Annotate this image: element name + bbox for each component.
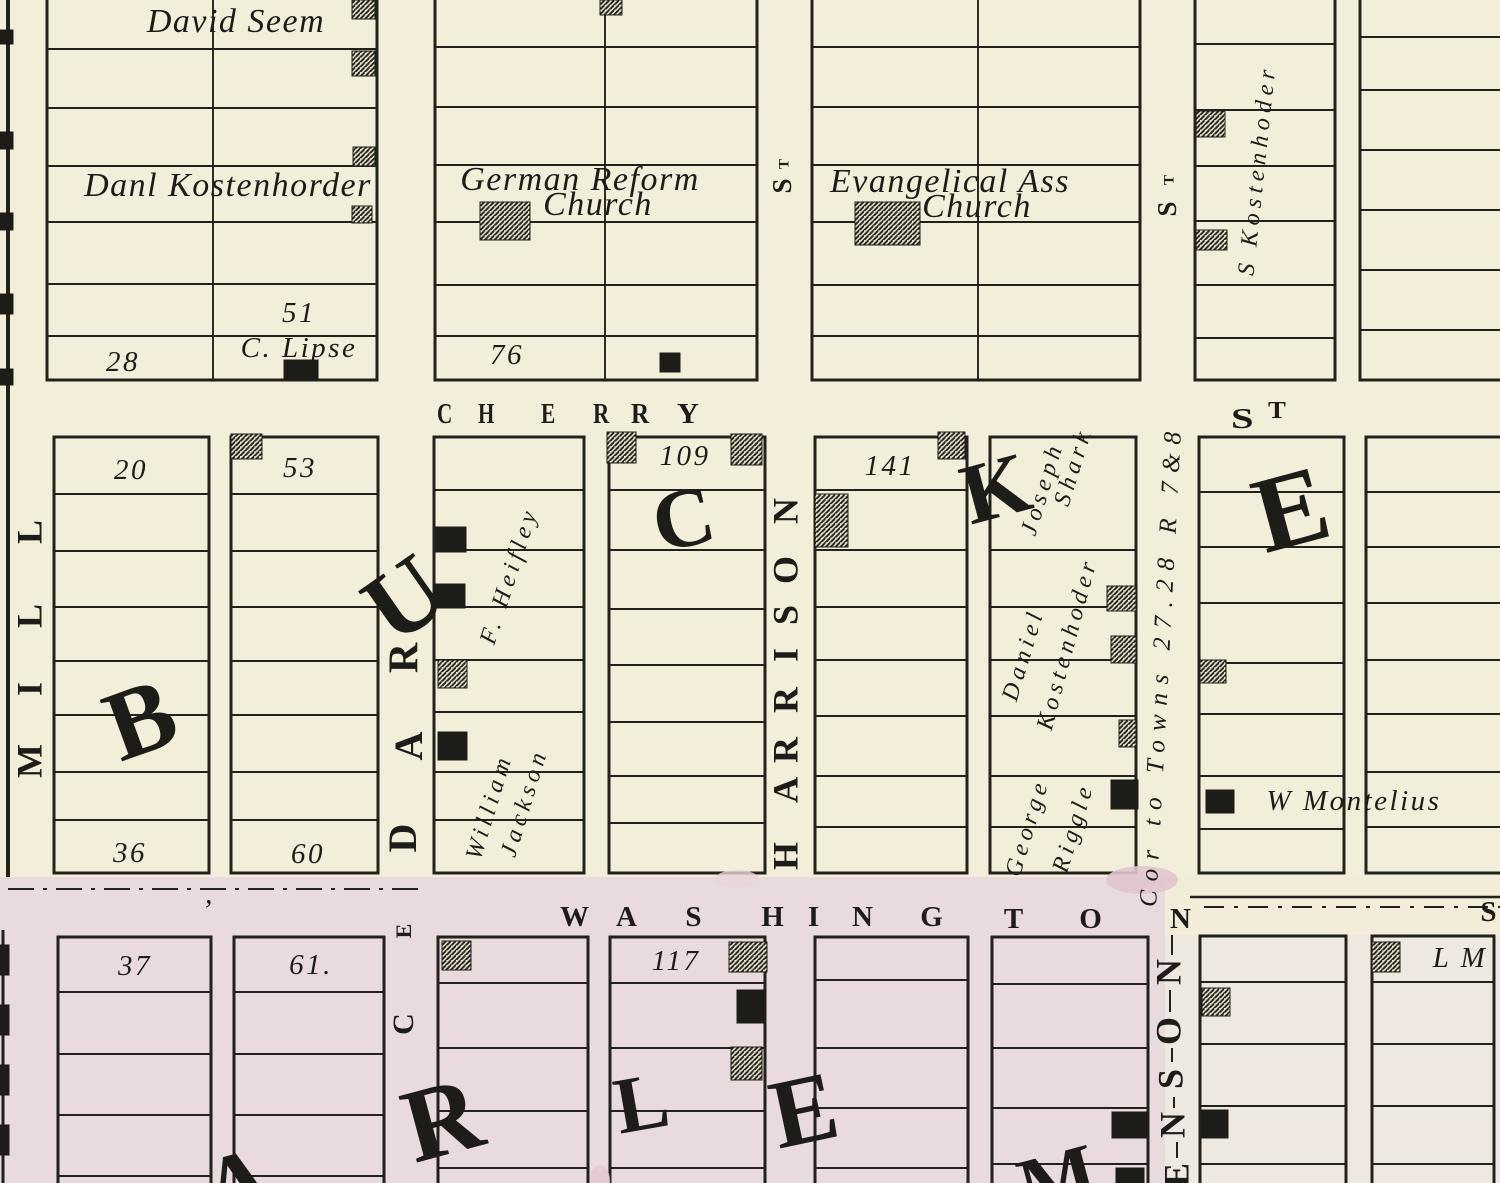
svg-text:60: 60 <box>291 838 325 870</box>
svg-text:I: I <box>765 648 805 662</box>
svg-text:A: A <box>616 901 638 933</box>
svg-text:Church: Church <box>922 188 1032 225</box>
svg-text:G: G <box>920 901 944 933</box>
svg-text:53: 53 <box>283 452 317 484</box>
svg-text:N: N <box>1152 1112 1192 1138</box>
svg-text:O: O <box>765 556 805 584</box>
svg-text:Y: Y <box>677 398 700 430</box>
svg-text:R: R <box>382 642 428 673</box>
svg-text:S: S <box>767 178 797 193</box>
svg-text:20: 20 <box>114 454 148 486</box>
svg-text:I: I <box>9 682 49 696</box>
svg-text:141: 141 <box>865 450 916 482</box>
svg-text:76: 76 <box>490 339 524 371</box>
svg-text:S: S <box>1152 201 1182 216</box>
svg-text:51: 51 <box>282 297 316 329</box>
svg-text:O: O <box>1079 903 1103 935</box>
svg-text:H: H <box>765 842 805 870</box>
svg-text:T: T <box>1161 175 1177 185</box>
svg-text:S: S <box>1150 1069 1190 1089</box>
svg-text:A: A <box>386 731 431 760</box>
svg-text:28: 28 <box>106 346 140 378</box>
svg-text:A: A <box>765 777 805 803</box>
svg-text:R: R <box>631 398 650 430</box>
svg-text:E: E <box>391 924 416 939</box>
svg-text:D: D <box>380 824 425 853</box>
svg-text:T: T <box>776 159 792 169</box>
svg-text:I: I <box>808 901 820 933</box>
svg-text:W: W <box>560 901 590 933</box>
svg-text:Danl Kostenhorder: Danl Kostenhorder <box>83 167 372 204</box>
svg-text:61.: 61. <box>289 949 333 981</box>
svg-text:37: 37 <box>117 950 152 982</box>
svg-text:R: R <box>765 736 805 763</box>
svg-text:E: E <box>1156 1163 1196 1183</box>
svg-text:N: N <box>852 901 874 933</box>
svg-text:R: R <box>593 398 610 430</box>
svg-text:Church: Church <box>543 186 653 223</box>
svg-text:T: T <box>1004 903 1024 935</box>
svg-text:H: H <box>478 398 495 430</box>
svg-text:David Seem: David Seem <box>146 3 325 40</box>
svg-text:L: L <box>9 604 49 628</box>
svg-text:S: S <box>1480 896 1497 928</box>
svg-text:109: 109 <box>660 440 711 472</box>
svg-text:H: H <box>761 901 785 933</box>
svg-text:C: C <box>437 398 453 430</box>
svg-text:T: T <box>1268 398 1287 424</box>
svg-text:M: M <box>9 744 49 778</box>
svg-text:O: O <box>1148 1017 1188 1045</box>
svg-text:L M: L M <box>1432 942 1488 974</box>
svg-text:N: N <box>1148 959 1188 985</box>
svg-text:117: 117 <box>652 945 701 977</box>
svg-text:C. Lipse: C. Lipse <box>241 332 358 364</box>
svg-text:36: 36 <box>112 837 147 869</box>
svg-text:R: R <box>765 686 805 713</box>
svg-text:L: L <box>9 520 49 544</box>
svg-text:N: N <box>765 498 805 524</box>
svg-text:,: , <box>205 877 213 910</box>
svg-text:C: C <box>387 1013 420 1035</box>
svg-text:S: S <box>765 605 805 625</box>
svg-text:N: N <box>1170 903 1192 935</box>
svg-text:E: E <box>541 398 556 430</box>
svg-text:S: S <box>1231 403 1255 435</box>
svg-text:S: S <box>685 901 702 933</box>
svg-text:W Montelius: W Montelius <box>1267 785 1442 817</box>
